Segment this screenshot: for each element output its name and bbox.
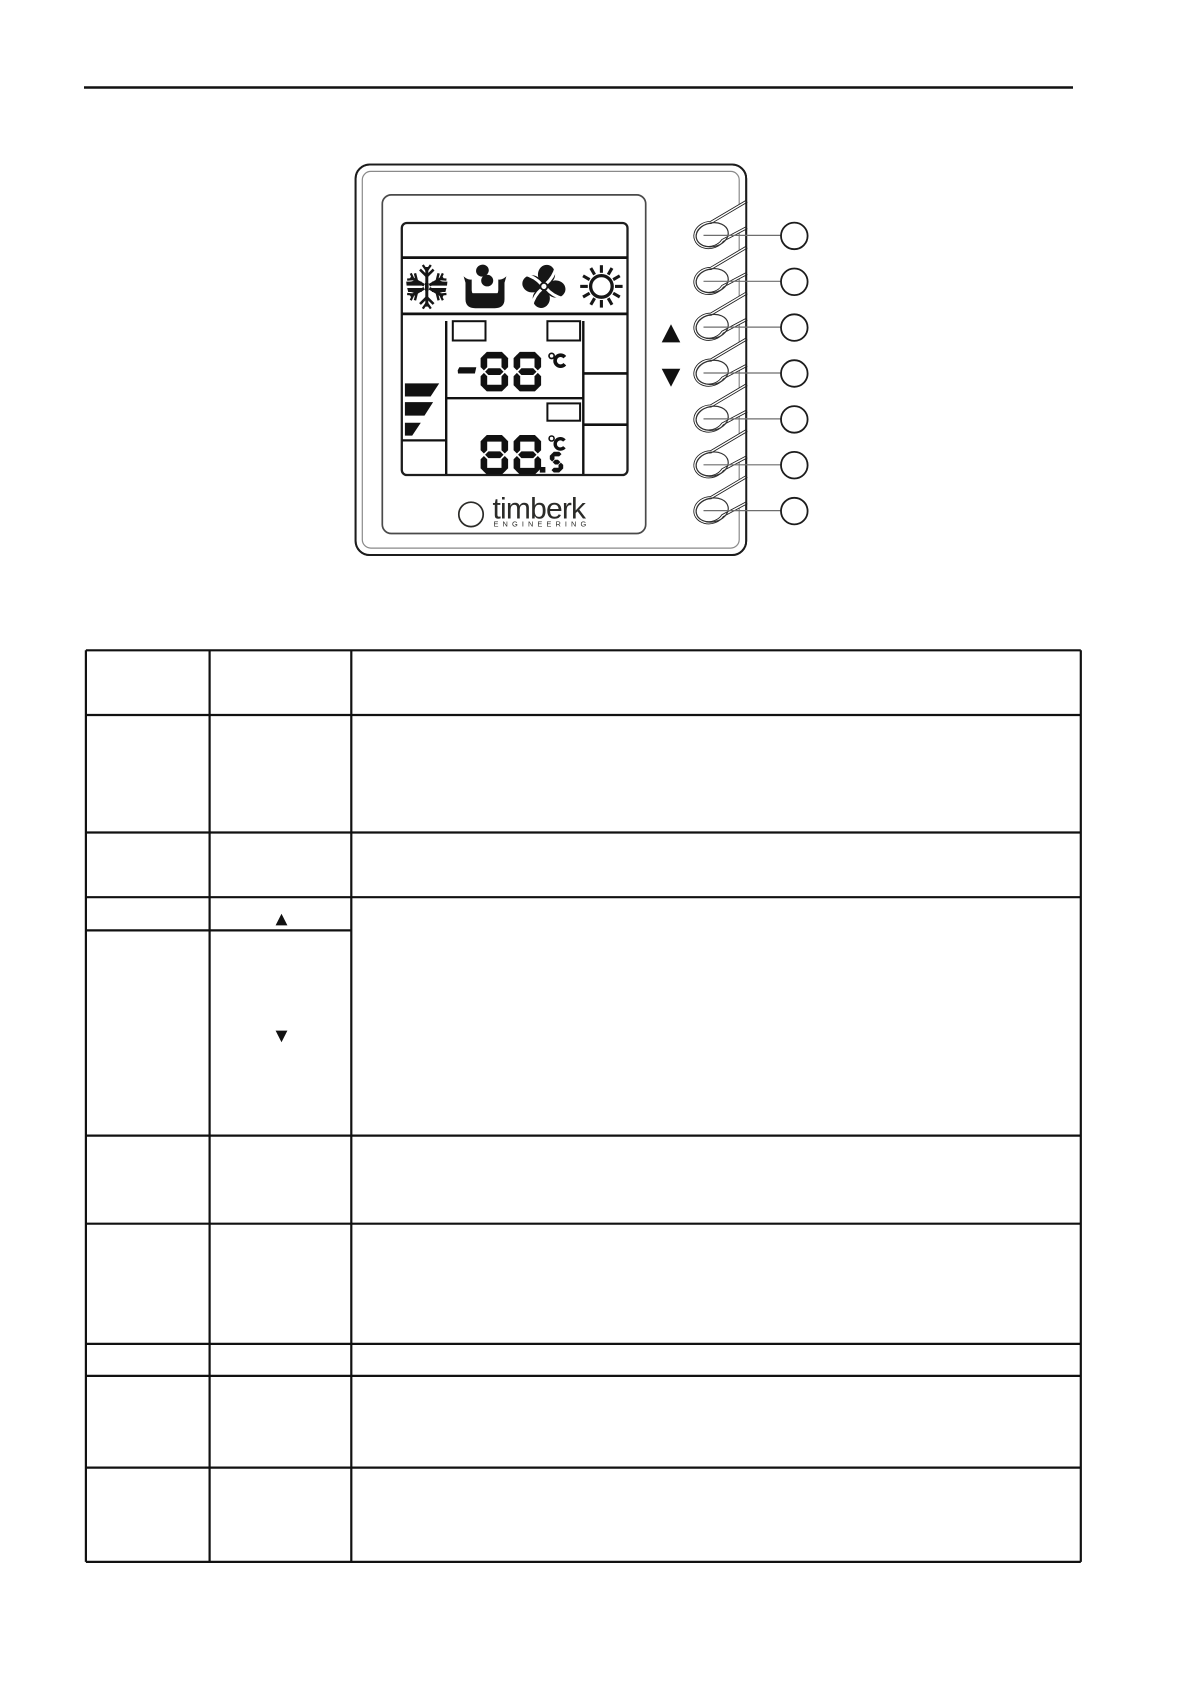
svg-text:ENGINEERING: ENGINEERING: [494, 520, 591, 529]
